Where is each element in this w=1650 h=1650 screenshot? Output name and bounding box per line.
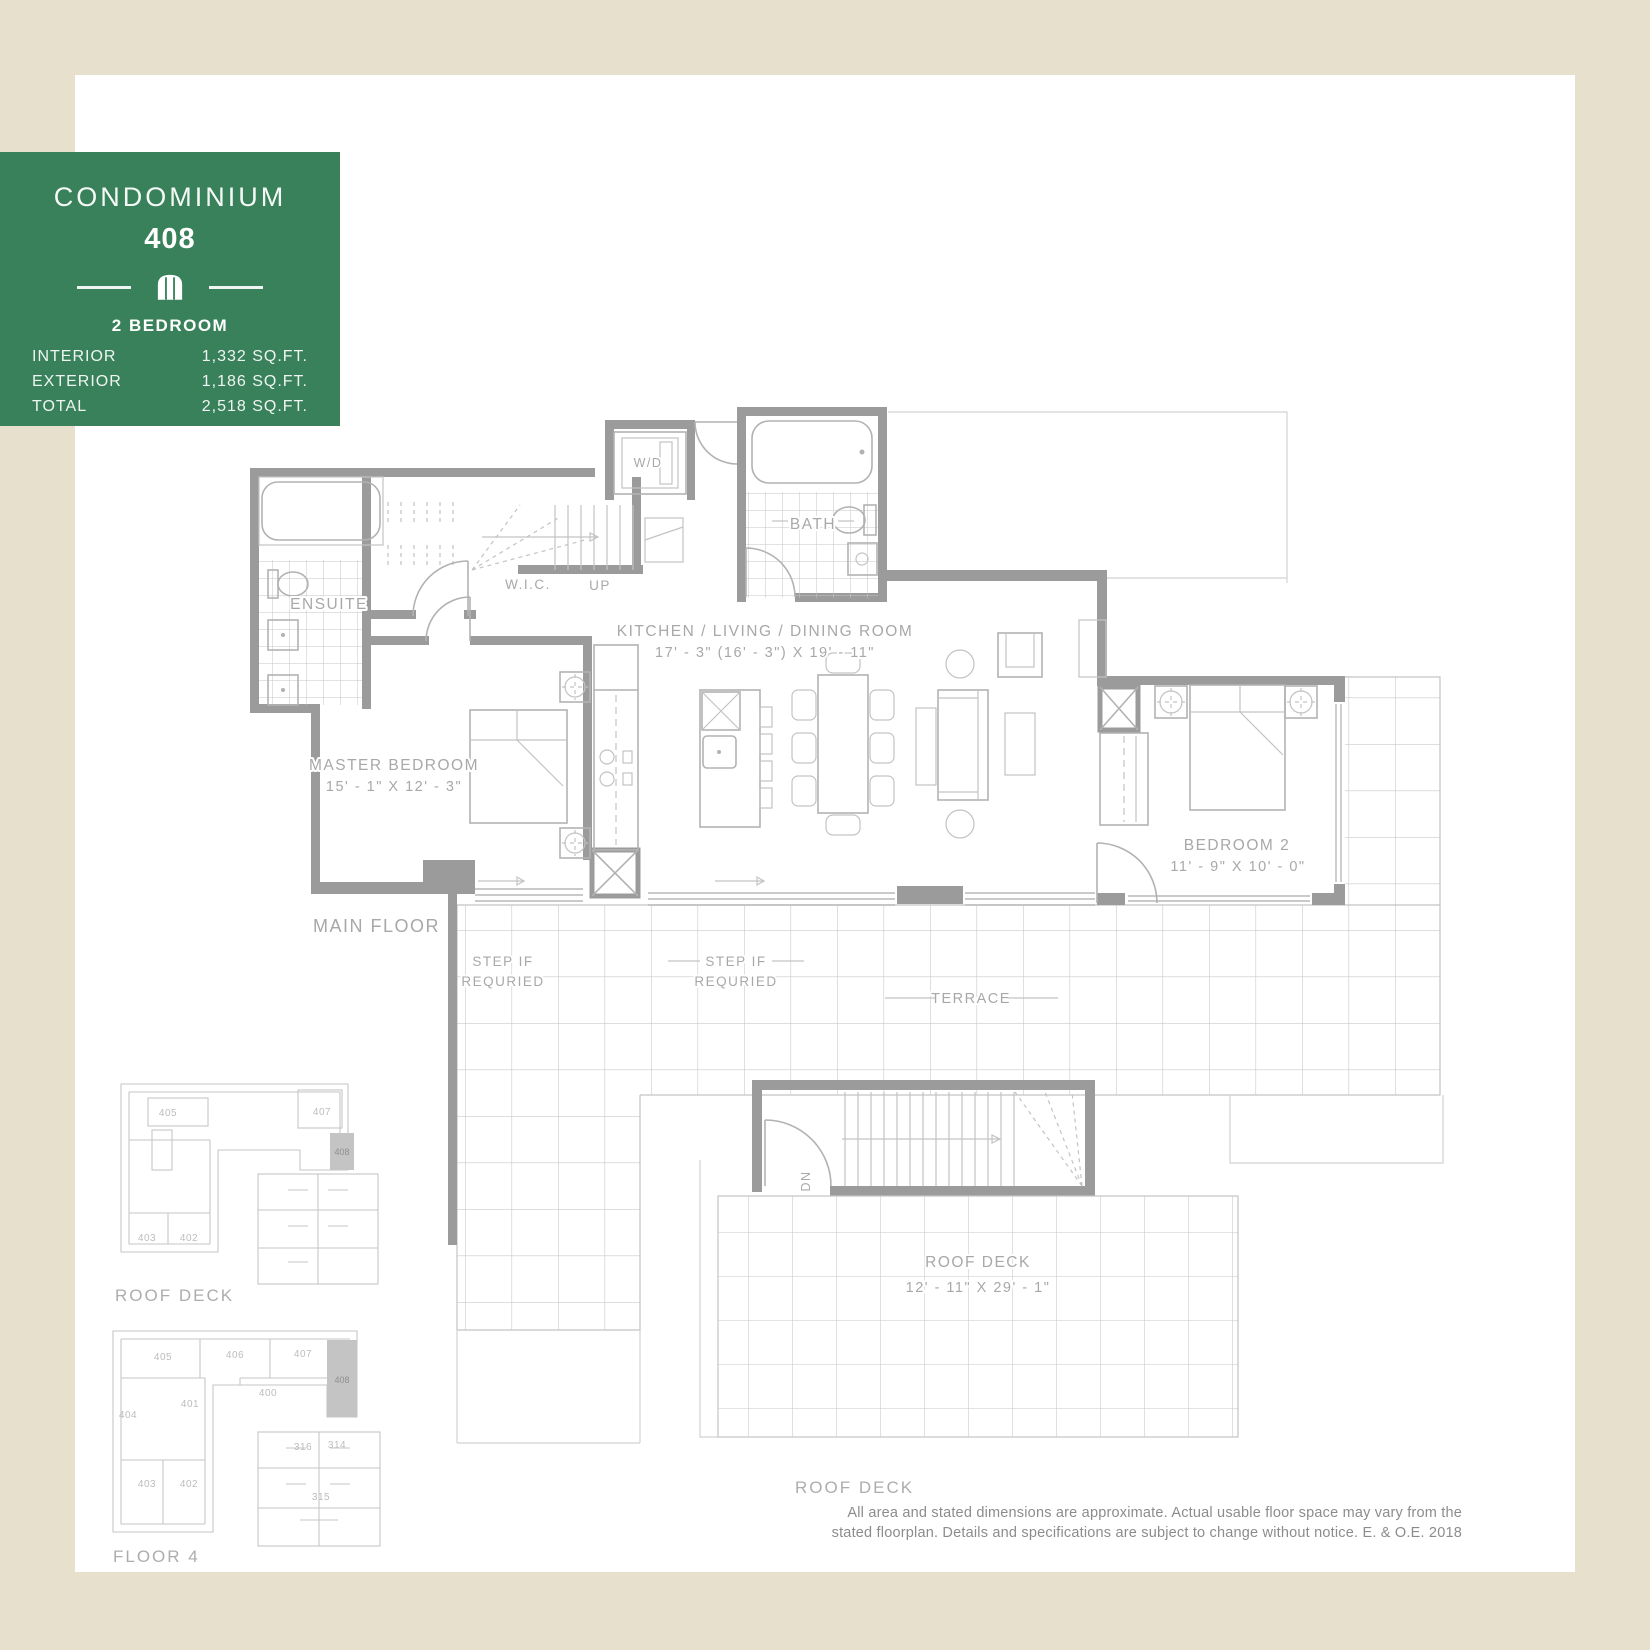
keyplan-unit-label: 406 bbox=[226, 1350, 244, 1361]
keyplan-unit-label: 400 bbox=[259, 1388, 277, 1399]
label-step2-line2: REQURIED bbox=[694, 974, 777, 989]
disclaimer-line2: stated floorplan. Details and specificat… bbox=[832, 1525, 1462, 1541]
shaft-boxes bbox=[592, 687, 1138, 896]
keyplan-unit-label: 407 bbox=[294, 1349, 312, 1360]
stat-label: EXTERIOR bbox=[32, 369, 122, 394]
keyplan-unit-label: 403 bbox=[138, 1233, 156, 1244]
keyplan-floor4-caption: FLOOR 4 bbox=[113, 1547, 200, 1566]
stat-label: INTERIOR bbox=[32, 344, 116, 369]
divider-rule-left bbox=[77, 286, 131, 289]
label-step1-line2: REQURIED bbox=[461, 974, 544, 989]
unit-type-label: 2 BEDROOM bbox=[0, 316, 340, 336]
keyplan-unit-label: 407 bbox=[313, 1107, 331, 1118]
unit-number: 408 bbox=[0, 223, 340, 256]
stairs-up bbox=[472, 505, 633, 570]
stat-row-total: TOTAL 2,518 SQ.FT. bbox=[32, 394, 308, 419]
kitchen-island bbox=[700, 690, 772, 827]
stat-row-exterior: EXTERIOR 1,186 SQ.FT. bbox=[32, 369, 308, 394]
keyplan-roof-caption: ROOF DECK bbox=[115, 1286, 234, 1305]
stat-row-interior: INTERIOR 1,332 SQ.FT. bbox=[32, 344, 308, 369]
keyplan-unit-label: 316 bbox=[294, 1442, 312, 1453]
stat-value: 1,332 SQ.FT. bbox=[202, 344, 308, 369]
stat-value: 2,518 SQ.FT. bbox=[202, 394, 308, 419]
label-kitchen-name: KITCHEN / LIVING / DINING ROOM bbox=[617, 623, 913, 640]
keyplan-highlight-unit: 408 bbox=[334, 1375, 349, 1385]
foyer-closet bbox=[645, 518, 683, 562]
label-bedroom2-name: BEDROOM 2 bbox=[1184, 837, 1291, 854]
card-divider-row bbox=[0, 272, 340, 302]
entry-door bbox=[695, 422, 737, 464]
label-roofdeck-dims: 12' - 11" X 29' - 1" bbox=[906, 1280, 1051, 1296]
unit-info-card: CONDOMINIUM 408 2 BEDROOM INTERIOR 1,332… bbox=[0, 152, 340, 426]
arched-window-icon bbox=[155, 272, 185, 302]
divider-rule-right bbox=[209, 286, 263, 289]
keyplan-highlight-unit: 408 bbox=[334, 1147, 349, 1157]
label-terrace: TERRACE bbox=[931, 991, 1011, 1007]
area-stats: INTERIOR 1,332 SQ.FT. EXTERIOR 1,186 SQ.… bbox=[0, 344, 340, 419]
label-step1-line1: STEP IF bbox=[472, 954, 533, 969]
label-master-name: MASTER BEDROOM bbox=[309, 757, 479, 774]
label-bath: BATH bbox=[790, 516, 836, 533]
living-room bbox=[916, 633, 1042, 838]
stat-label: TOTAL bbox=[32, 394, 87, 419]
caption-main-floor: MAIN FLOOR bbox=[313, 916, 440, 936]
keyplan-unit-label: 315 bbox=[312, 1492, 330, 1503]
label-wd: W/D bbox=[634, 456, 663, 470]
label-bedroom2-dims: 11' - 9" X 10' - 0" bbox=[1170, 859, 1305, 875]
label-master-dims: 15' - 1" X 12' - 3" bbox=[326, 779, 462, 795]
keyplan-unit-label: 403 bbox=[138, 1479, 156, 1490]
disclaimer-line1: All area and stated dimensions are appro… bbox=[847, 1505, 1462, 1521]
caption-roof-deck: ROOF DECK bbox=[795, 1478, 914, 1497]
label-up: UP bbox=[589, 578, 611, 593]
dining-table bbox=[792, 653, 894, 835]
keyplan-unit-label: 404 bbox=[119, 1410, 137, 1421]
keyplan-unit-label: 402 bbox=[180, 1479, 198, 1490]
label-step2-line1: STEP IF bbox=[705, 954, 766, 969]
disclaimer: All area and stated dimensions are appro… bbox=[832, 1505, 1462, 1541]
keyplan-unit-label: 405 bbox=[154, 1352, 172, 1363]
label-wic: W.I.C. bbox=[505, 577, 551, 592]
keyplan-unit-label: 401 bbox=[181, 1399, 199, 1410]
keyplan-unit-label: 405 bbox=[159, 1108, 177, 1119]
label-ensuite: ENSUITE bbox=[290, 596, 368, 613]
keyplan-unit-label: 314 bbox=[328, 1440, 346, 1451]
keyplan-roof-deck: 405 407 403 402 408 ROOF DECK bbox=[115, 1084, 378, 1305]
stat-value: 1,186 SQ.FT. bbox=[202, 369, 308, 394]
bath bbox=[746, 421, 878, 598]
floorplan-sheet: { "sheet": { "frame_color": "#e7e0cd", "… bbox=[0, 0, 1650, 1650]
card-title: CONDOMINIUM bbox=[0, 182, 340, 213]
label-dn: DN bbox=[799, 1170, 813, 1191]
keyplan-floor4: 405 406 407 400 401 404 403 402 316 314 … bbox=[113, 1331, 380, 1566]
keyplan-unit-label: 402 bbox=[180, 1233, 198, 1244]
label-kitchen-dims: 17' - 3" (16' - 3") X 19' - 11" bbox=[655, 645, 875, 661]
label-roofdeck-name: ROOF DECK bbox=[925, 1254, 1031, 1271]
